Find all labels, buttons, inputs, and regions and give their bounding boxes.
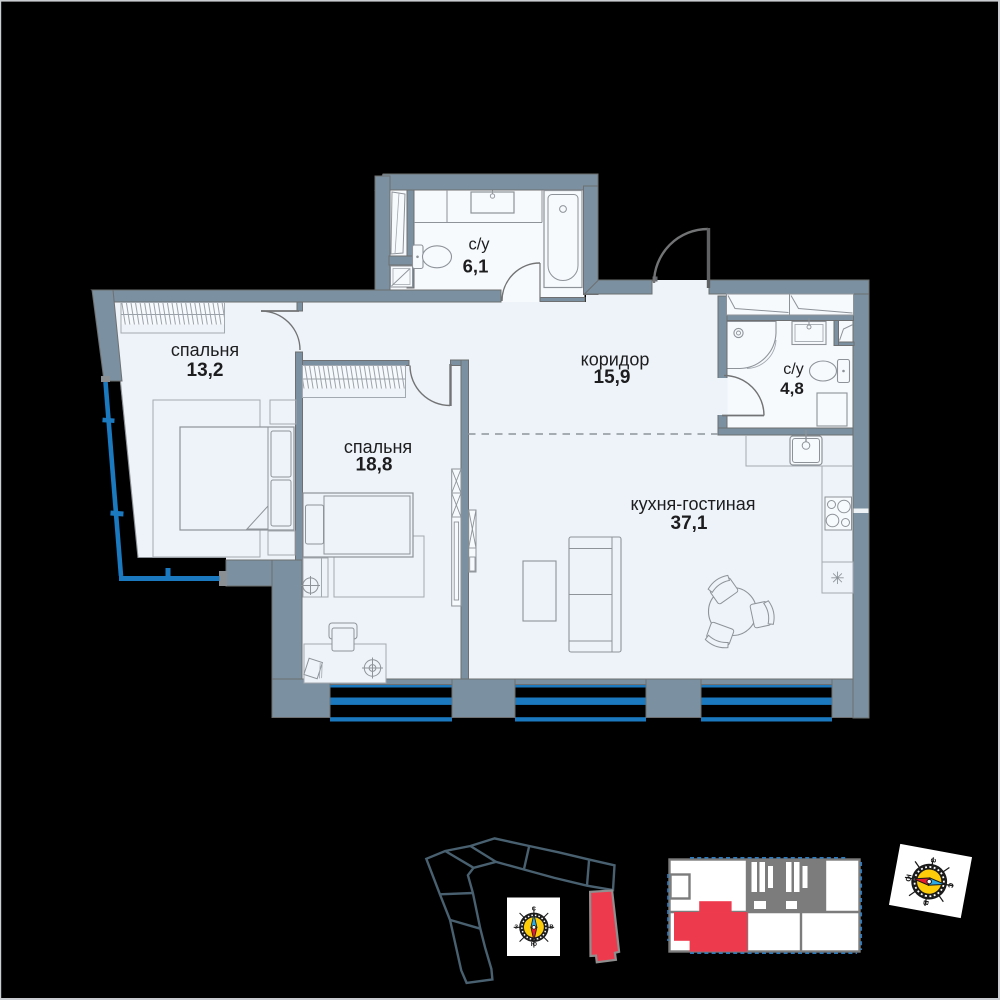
svg-text:4,8: 4,8: [780, 379, 804, 398]
svg-text:В: В: [549, 924, 553, 930]
svg-text:З: З: [514, 924, 518, 930]
svg-text:37,1: 37,1: [671, 513, 708, 534]
svg-text:15,9: 15,9: [594, 367, 631, 388]
svg-text:✳: ✳: [830, 569, 844, 588]
svg-text:спальня: спальня: [171, 340, 239, 360]
svg-text:кухня-гостиная: кухня-гостиная: [631, 494, 756, 514]
svg-text:с/у: с/у: [783, 361, 803, 378]
svg-text:13,2: 13,2: [187, 360, 224, 381]
svg-text:с/у: с/у: [468, 236, 490, 254]
svg-text:6,1: 6,1: [463, 256, 489, 277]
svg-text:18,8: 18,8: [356, 455, 393, 476]
svg-text:С: С: [532, 907, 537, 913]
svg-text:Ю: Ю: [531, 942, 537, 948]
